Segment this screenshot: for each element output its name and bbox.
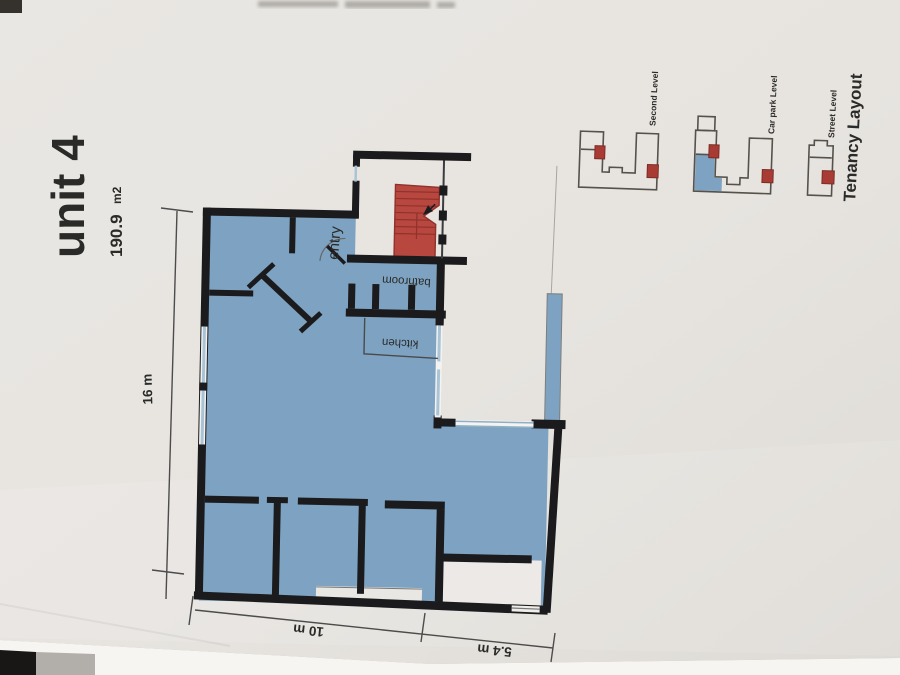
unit-marker (647, 164, 658, 177)
dimension-label-width-main: 10 m (292, 621, 324, 639)
tenancy-plan-drawing: unit 4 190.9 m2 (0, 0, 900, 675)
unit-area-unit: m2 (110, 186, 124, 204)
top-left-background-sliver (0, 0, 22, 13)
unit-marker (595, 146, 605, 159)
unit-marker (822, 171, 834, 184)
dimension-label-height: 16 m (140, 374, 156, 405)
room-label-entry: entry (325, 225, 344, 260)
room-label-kitchen: kitchen (382, 336, 419, 350)
photographed-floor-plan-page: unit 4 190.9 m2 (0, 0, 900, 675)
unit-marker (709, 145, 719, 158)
store-room-white (442, 559, 542, 606)
unit-area-value: 190.9 (107, 214, 126, 257)
dark-corner-object (0, 650, 36, 675)
unit-marker (762, 169, 773, 182)
background-page-text-smudge (258, 1, 455, 8)
unit-title: unit 4 (42, 135, 94, 258)
corner-shadow (36, 652, 95, 675)
right-terrace-strip (545, 294, 563, 426)
